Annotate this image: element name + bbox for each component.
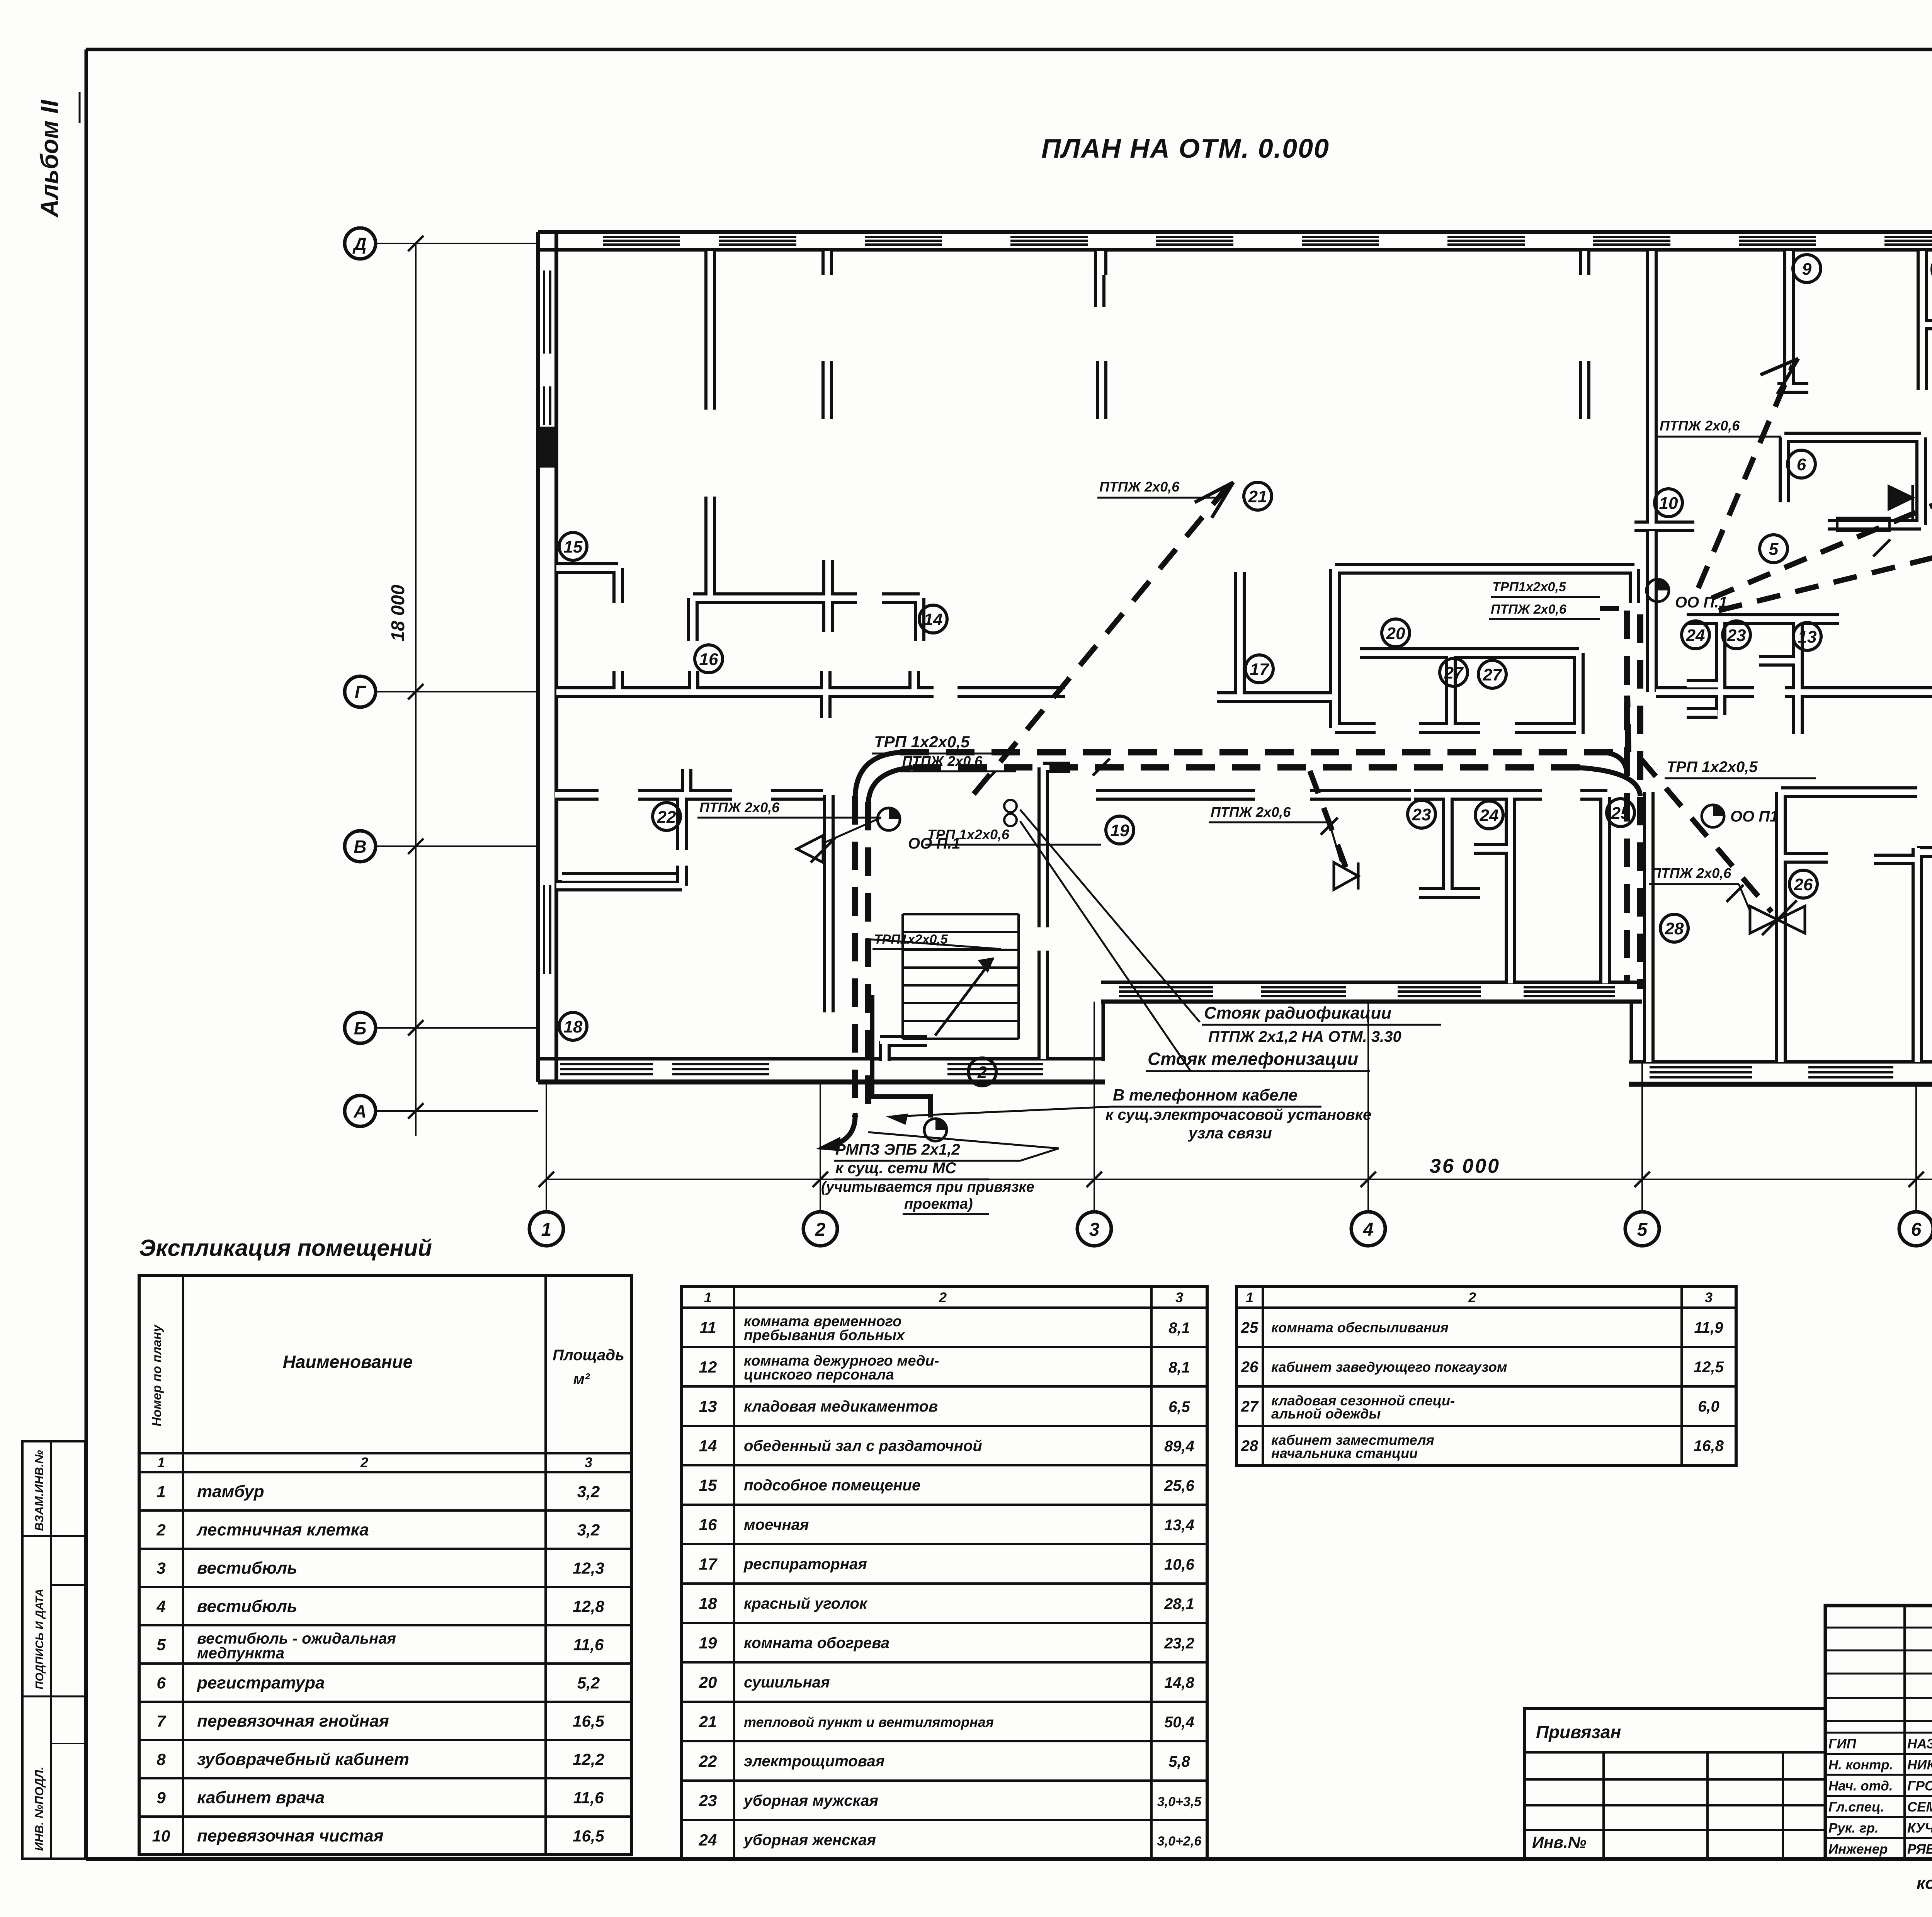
svg-text:14: 14 — [924, 610, 943, 629]
svg-text:8,1: 8,1 — [1168, 1320, 1190, 1337]
svg-text:24: 24 — [699, 1831, 717, 1849]
svg-text:ТРП 1х2х0,5: ТРП 1х2х0,5 — [1667, 759, 1758, 776]
svg-text:Инв.№: Инв.№ — [1532, 1833, 1587, 1851]
svg-text:1: 1 — [156, 1483, 165, 1501]
svg-text:3: 3 — [156, 1559, 165, 1577]
svg-text:15: 15 — [564, 538, 583, 556]
svg-text:12,5: 12,5 — [1694, 1359, 1724, 1376]
svg-text:18: 18 — [564, 1017, 583, 1036]
svg-text:НИКИТИНА: НИКИТИНА — [1907, 1757, 1932, 1772]
svg-text:27: 27 — [1241, 1398, 1259, 1415]
svg-text:19: 19 — [1111, 821, 1129, 840]
svg-text:27: 27 — [1483, 665, 1503, 684]
svg-text:18: 18 — [699, 1594, 717, 1613]
svg-text:2: 2 — [815, 1220, 826, 1240]
svg-text:лестничная клетка: лестничная клетка — [196, 1521, 369, 1539]
svg-text:комната обеспыливания: комната обеспыливания — [1271, 1320, 1449, 1335]
svg-text:ГРОМОВ: ГРОМОВ — [1907, 1778, 1932, 1793]
svg-text:3: 3 — [1175, 1289, 1183, 1305]
svg-text:медпункта: медпункта — [197, 1645, 284, 1662]
svg-text:23: 23 — [699, 1791, 717, 1810]
svg-text:22: 22 — [699, 1752, 717, 1770]
svg-text:тамбур: тамбур — [197, 1482, 264, 1501]
svg-text:Экспликация помещений: Экспликация помещений — [139, 1235, 432, 1261]
svg-text:16,5: 16,5 — [573, 1712, 604, 1730]
svg-text:В: В — [354, 837, 366, 857]
svg-text:5: 5 — [1637, 1220, 1648, 1240]
svg-text:23: 23 — [1727, 626, 1746, 645]
svg-text:ПЛАН НА ОТМ. 0.000: ПЛАН НА ОТМ. 0.000 — [1041, 133, 1330, 163]
svg-text:20: 20 — [699, 1673, 717, 1691]
svg-text:ОО П.1: ОО П.1 — [1675, 594, 1727, 611]
svg-text:16: 16 — [699, 650, 718, 669]
svg-text:28: 28 — [1665, 919, 1684, 938]
svg-text:20: 20 — [1386, 624, 1405, 643]
svg-text:Д: Д — [352, 234, 366, 254]
svg-text:РЯБОВА: РЯБОВА — [1907, 1842, 1932, 1857]
svg-text:НАЗАРОВА: НАЗАРОВА — [1907, 1736, 1932, 1751]
svg-text:5: 5 — [156, 1636, 166, 1654]
svg-text:подсобное помещение: подсобное помещение — [744, 1477, 920, 1494]
svg-text:А: А — [353, 1101, 366, 1121]
svg-text:Г: Г — [355, 682, 366, 702]
svg-text:КУЧЕРЯВАЯ: КУЧЕРЯВАЯ — [1907, 1820, 1932, 1835]
svg-text:14,8: 14,8 — [1164, 1674, 1195, 1691]
svg-text:3: 3 — [1705, 1289, 1713, 1305]
svg-text:2: 2 — [939, 1289, 947, 1305]
svg-text:10,6: 10,6 — [1164, 1556, 1195, 1573]
svg-text:24: 24 — [1686, 626, 1705, 645]
svg-text:Номер по плану: Номер по плану — [150, 1324, 164, 1427]
svg-text:комната обогрева: комната обогрева — [744, 1635, 889, 1652]
svg-text:21: 21 — [699, 1713, 717, 1731]
svg-text:36 000: 36 000 — [1430, 1155, 1500, 1177]
svg-text:25: 25 — [1611, 804, 1630, 823]
svg-text:ПТПЖ 2х0,6: ПТПЖ 2х0,6 — [902, 753, 983, 769]
svg-text:3: 3 — [1089, 1220, 1100, 1240]
svg-text:к сущ.электрочасовой установке: к сущ.электрочасовой установке — [1105, 1106, 1371, 1123]
svg-text:15: 15 — [699, 1476, 717, 1494]
svg-text:кабинет врача: кабинет врача — [197, 1788, 325, 1807]
svg-text:(учитывается при привязке: (учитывается при привязке — [821, 1179, 1034, 1195]
svg-text:6: 6 — [1797, 455, 1806, 474]
svg-text:Инженер: Инженер — [1828, 1842, 1888, 1857]
svg-text:сушильная: сушильная — [744, 1674, 830, 1691]
svg-text:электрощитовая: электрощитовая — [744, 1753, 884, 1770]
svg-text:24: 24 — [1480, 806, 1499, 825]
svg-text:копировал:: копировал: — [1917, 1874, 1932, 1893]
svg-text:22: 22 — [657, 808, 676, 827]
svg-text:кабинет заведующего покгаузом: кабинет заведующего покгаузом — [1271, 1359, 1507, 1375]
svg-text:ПТПЖ 2х0,6: ПТПЖ 2х0,6 — [1099, 479, 1180, 495]
svg-text:вестибюль: вестибюль — [197, 1597, 297, 1616]
svg-text:к сущ. сети МС: к сущ. сети МС — [835, 1160, 957, 1177]
svg-text:Гл.спец.: Гл.спец. — [1828, 1800, 1884, 1815]
svg-text:ВЗАМ.ИНВ.№: ВЗАМ.ИНВ.№ — [32, 1450, 46, 1531]
svg-text:2: 2 — [977, 1063, 987, 1082]
svg-text:10: 10 — [152, 1827, 170, 1845]
svg-text:Стояк телефонизации: Стояк телефонизации — [1148, 1049, 1358, 1069]
svg-text:Рук. гр.: Рук. гр. — [1828, 1820, 1879, 1835]
svg-text:21: 21 — [1248, 487, 1267, 506]
svg-text:11,9: 11,9 — [1694, 1319, 1724, 1336]
svg-text:1: 1 — [541, 1220, 552, 1240]
svg-text:8: 8 — [156, 1750, 166, 1769]
svg-text:уборная мужская: уборная мужская — [743, 1792, 878, 1809]
svg-text:обеденный зал с раздаточной: обеденный зал с раздаточной — [744, 1437, 982, 1454]
svg-text:11,6: 11,6 — [573, 1789, 604, 1807]
svg-text:3: 3 — [585, 1454, 592, 1470]
svg-text:3,2: 3,2 — [577, 1483, 600, 1501]
svg-text:3,0+3,5: 3,0+3,5 — [1157, 1795, 1202, 1809]
svg-text:9: 9 — [156, 1789, 166, 1807]
svg-text:цинского персонала: цинского персонала — [744, 1367, 894, 1383]
svg-text:тепловой пункт и вентиляторная: тепловой пункт и вентиляторная — [744, 1714, 994, 1730]
svg-text:зубоврачебный кабинет: зубоврачебный кабинет — [197, 1750, 409, 1769]
svg-text:уборная женская: уборная женская — [743, 1832, 876, 1849]
svg-text:10: 10 — [1659, 494, 1678, 513]
svg-text:ПТПЖ 2х0,6: ПТПЖ 2х0,6 — [1651, 865, 1731, 881]
svg-text:пребывания больных: пребывания больных — [744, 1327, 905, 1344]
svg-text:регистратура: регистратура — [197, 1674, 325, 1692]
svg-text:ИНВ. №ПОДЛ.: ИНВ. №ПОДЛ. — [32, 1767, 46, 1851]
svg-text:ТРП 1х2х0,6: ТРП 1х2х0,6 — [927, 827, 1010, 842]
svg-text:6: 6 — [1911, 1220, 1922, 1240]
svg-text:13: 13 — [699, 1397, 717, 1415]
svg-text:12: 12 — [699, 1358, 717, 1376]
svg-text:респираторная: респираторная — [743, 1556, 867, 1573]
svg-text:9: 9 — [1802, 260, 1812, 279]
svg-text:11: 11 — [699, 1318, 716, 1337]
svg-text:27: 27 — [1444, 663, 1464, 682]
svg-text:1: 1 — [157, 1454, 165, 1470]
svg-text:3,2: 3,2 — [577, 1521, 600, 1539]
svg-text:проекта): проекта) — [904, 1196, 973, 1212]
svg-text:19: 19 — [699, 1634, 717, 1652]
svg-text:5: 5 — [1769, 540, 1779, 559]
svg-text:В телефонном кабеле: В телефонном кабеле — [1113, 1086, 1298, 1104]
svg-text:28: 28 — [1241, 1437, 1259, 1454]
svg-text:26: 26 — [1794, 875, 1813, 894]
svg-text:26: 26 — [1241, 1359, 1259, 1376]
svg-text:начальника станции: начальника станции — [1271, 1445, 1418, 1461]
svg-text:перевязочная гнойная: перевязочная гнойная — [197, 1712, 389, 1731]
svg-text:ОО П1: ОО П1 — [1730, 808, 1778, 825]
svg-text:18 000: 18 000 — [388, 585, 408, 641]
svg-text:Альбом II: Альбом II — [36, 99, 63, 218]
svg-text:ПТПЖ 2х0,6: ПТПЖ 2х0,6 — [1660, 418, 1740, 434]
svg-text:кладовая медикаментов: кладовая медикаментов — [744, 1398, 938, 1415]
svg-text:Наименование: Наименование — [283, 1352, 413, 1372]
svg-text:перевязочная чистая: перевязочная чистая — [197, 1827, 384, 1846]
svg-text:5,2: 5,2 — [577, 1674, 600, 1692]
svg-text:17: 17 — [699, 1555, 718, 1573]
svg-text:4: 4 — [156, 1597, 165, 1616]
svg-text:8,1: 8,1 — [1168, 1359, 1190, 1376]
svg-text:6,5: 6,5 — [1168, 1398, 1190, 1415]
svg-text:красный уголок: красный уголок — [744, 1595, 868, 1612]
svg-text:4: 4 — [1363, 1220, 1374, 1240]
svg-text:23,2: 23,2 — [1164, 1635, 1194, 1652]
svg-text:2: 2 — [156, 1521, 165, 1539]
svg-text:Стояк радиофикации: Стояк радиофикации — [1204, 1004, 1391, 1022]
svg-text:12,3: 12,3 — [573, 1559, 604, 1577]
svg-text:5,8: 5,8 — [1168, 1753, 1190, 1770]
svg-text:ГИП: ГИП — [1828, 1736, 1857, 1751]
svg-text:12,8: 12,8 — [573, 1597, 604, 1616]
svg-text:Привязан: Привязан — [1536, 1722, 1621, 1742]
svg-text:50,4: 50,4 — [1164, 1714, 1194, 1731]
svg-text:Н. контр.: Н. контр. — [1828, 1757, 1893, 1772]
svg-text:13: 13 — [1798, 628, 1817, 646]
svg-text:РМПЗ ЭПБ 2х1,2: РМПЗ ЭПБ 2х1,2 — [835, 1141, 960, 1158]
svg-text:м²: м² — [573, 1371, 591, 1388]
svg-text:альной одежды: альной одежды — [1271, 1406, 1381, 1422]
svg-text:7: 7 — [156, 1712, 166, 1730]
svg-text:16: 16 — [699, 1516, 717, 1534]
svg-text:6,0: 6,0 — [1698, 1398, 1719, 1415]
svg-text:ТРП 1х2х0,5: ТРП 1х2х0,5 — [874, 733, 970, 751]
svg-text:14: 14 — [699, 1437, 717, 1455]
svg-text:ПТПЖ 2х1,2 НА ОТМ. 3.30: ПТПЖ 2х1,2 НА ОТМ. 3.30 — [1208, 1028, 1401, 1045]
svg-text:1: 1 — [704, 1289, 712, 1305]
svg-text:2: 2 — [360, 1454, 368, 1470]
svg-text:25: 25 — [1241, 1319, 1259, 1336]
svg-text:вестибюль: вестибюль — [197, 1559, 297, 1578]
svg-text:ПТПЖ 2х0,6: ПТПЖ 2х0,6 — [699, 799, 780, 815]
svg-text:13,4: 13,4 — [1164, 1517, 1194, 1534]
svg-text:Б: Б — [354, 1018, 367, 1038]
svg-text:Площадь: Площадь — [553, 1347, 624, 1364]
svg-text:16,8: 16,8 — [1694, 1437, 1724, 1454]
svg-text:СЕМЧУКОВА: СЕМЧУКОВА — [1907, 1800, 1932, 1815]
svg-text:23: 23 — [1412, 805, 1431, 824]
svg-text:17: 17 — [1250, 660, 1270, 679]
svg-text:6: 6 — [156, 1674, 166, 1692]
svg-text:моечная: моечная — [744, 1516, 809, 1533]
svg-text:28,1: 28,1 — [1164, 1596, 1194, 1613]
svg-text:2: 2 — [1468, 1289, 1476, 1305]
svg-text:89,4: 89,4 — [1164, 1438, 1194, 1455]
svg-text:3,0+2,6: 3,0+2,6 — [1157, 1834, 1202, 1849]
svg-text:ПТПЖ 2х0,6: ПТПЖ 2х0,6 — [1211, 804, 1291, 820]
svg-text:1: 1 — [1246, 1289, 1253, 1305]
svg-text:Нач. отд.: Нач. отд. — [1828, 1778, 1893, 1793]
svg-text:ПОДПИСЬ И ДАТА: ПОДПИСЬ И ДАТА — [34, 1589, 46, 1689]
svg-text:25,6: 25,6 — [1164, 1477, 1195, 1494]
svg-text:ТРП1х2х0,5: ТРП1х2х0,5 — [1492, 580, 1566, 594]
svg-text:16,5: 16,5 — [573, 1827, 604, 1845]
svg-text:ПТПЖ 2х0,6: ПТПЖ 2х0,6 — [1491, 602, 1567, 617]
svg-text:11,6: 11,6 — [573, 1636, 604, 1654]
svg-text:12,2: 12,2 — [573, 1750, 604, 1769]
svg-text:узла связи: узла связи — [1188, 1125, 1272, 1142]
